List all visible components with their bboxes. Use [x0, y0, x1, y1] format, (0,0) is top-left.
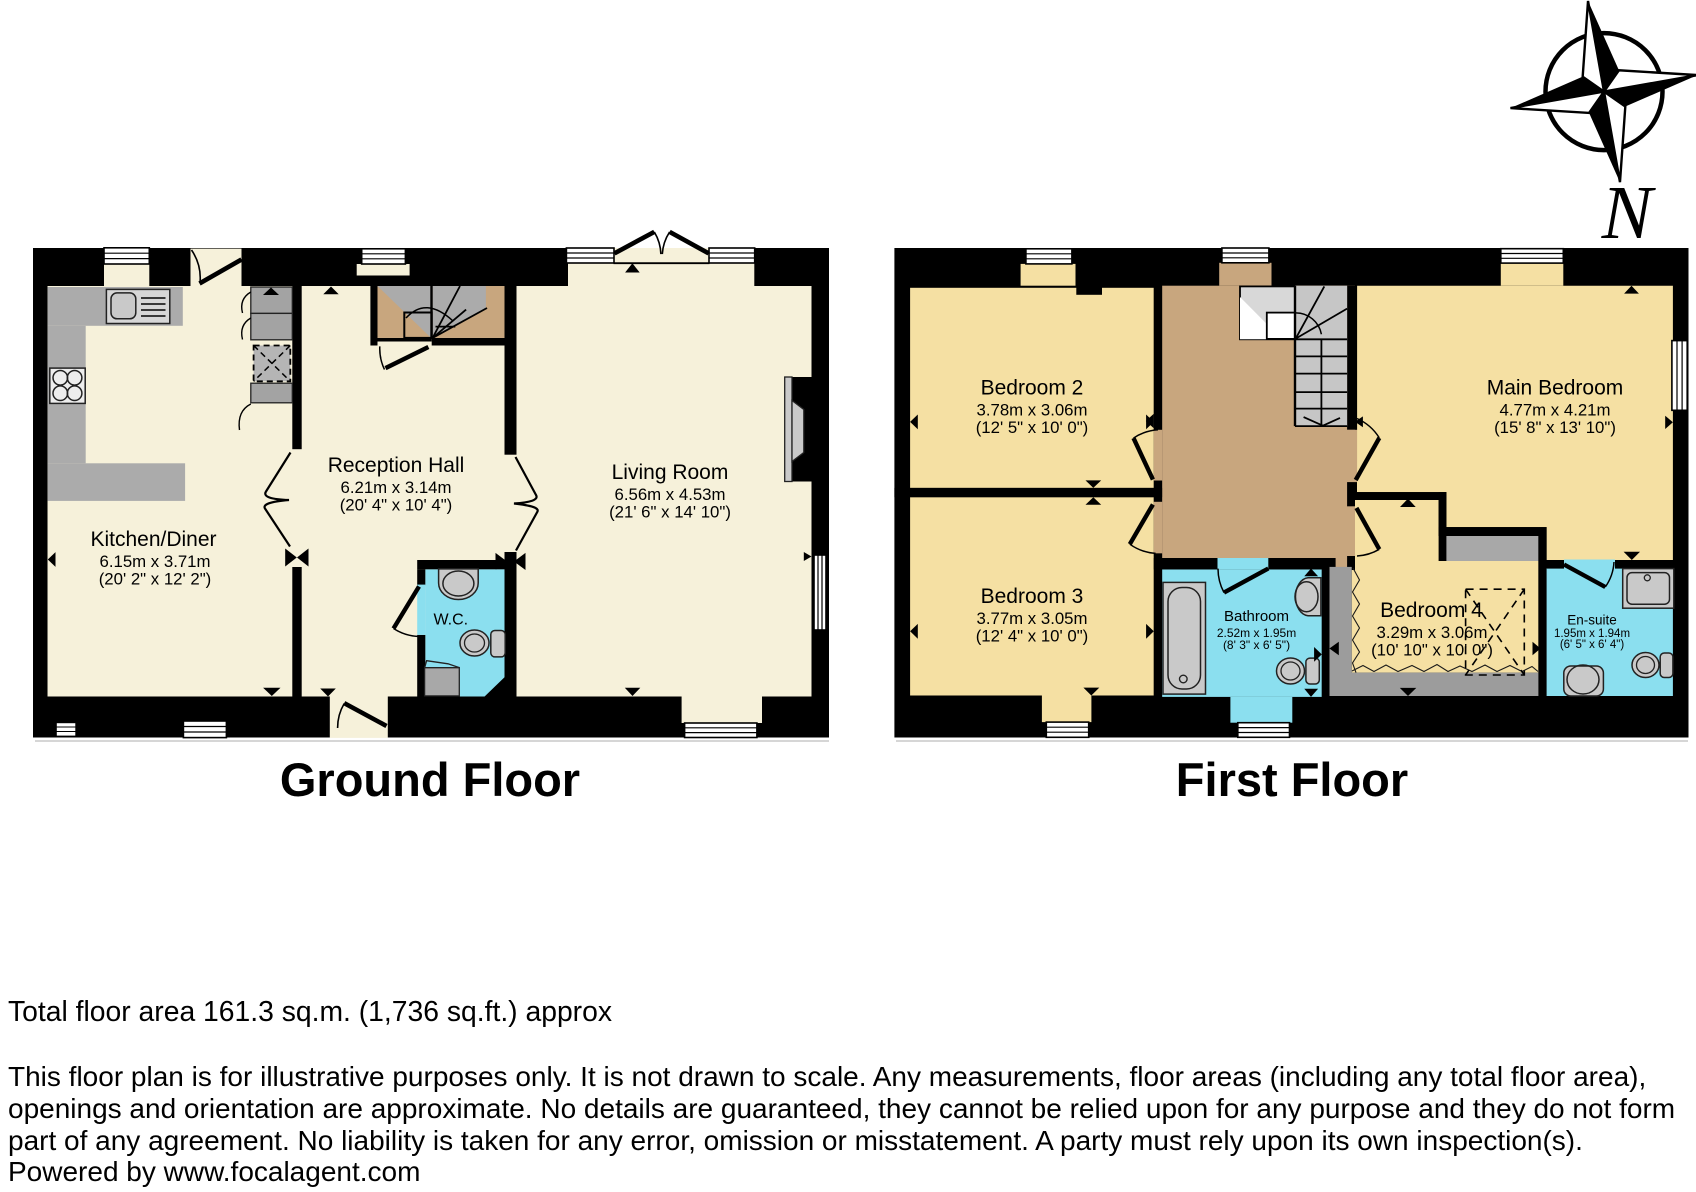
svg-text:Bedroom 4: Bedroom 4 — [1380, 599, 1483, 622]
svg-text:6.21m x 3.14m: 6.21m x 3.14m — [341, 478, 452, 497]
svg-text:3.78m x 3.06m: 3.78m x 3.06m — [977, 401, 1088, 420]
svg-text:(20' 2" x 12' 2"): (20' 2" x 12' 2") — [99, 570, 212, 589]
svg-text:(21' 6" x 14' 10"): (21' 6" x 14' 10") — [609, 503, 731, 522]
svg-text:Ground Floor: Ground Floor — [280, 753, 580, 806]
svg-text:Bedroom 2: Bedroom 2 — [981, 377, 1084, 400]
svg-text:(20' 4" x 10' 4"): (20' 4" x 10' 4") — [340, 496, 453, 515]
svg-text:(8' 3" x 6' 5"): (8' 3" x 6' 5") — [1223, 638, 1290, 652]
svg-text:W.C.: W.C. — [433, 612, 468, 629]
svg-text:4.77m x 4.21m: 4.77m x 4.21m — [1500, 401, 1611, 420]
svg-text:(15' 8" x 13' 10"): (15' 8" x 13' 10") — [1494, 418, 1616, 437]
svg-text:Bathroom: Bathroom — [1224, 608, 1289, 625]
svg-text:openings and orientation are a: openings and orientation are approximate… — [8, 1093, 1675, 1124]
svg-text:3.29m x 3.06m: 3.29m x 3.06m — [1377, 623, 1488, 642]
svg-text:(12' 5" x 10' 0"): (12' 5" x 10' 0") — [976, 418, 1089, 437]
svg-text:6.15m x 3.71m: 6.15m x 3.71m — [100, 552, 211, 571]
svg-text:(12' 4" x 10' 0"): (12' 4" x 10' 0") — [976, 627, 1089, 646]
svg-text:First Floor: First Floor — [1176, 753, 1408, 806]
svg-text:Living Room: Living Room — [612, 461, 729, 484]
svg-text:Main Bedroom: Main Bedroom — [1487, 377, 1624, 400]
svg-text:Reception Hall: Reception Hall — [328, 454, 465, 477]
svg-text:part of any agreement. No liab: part of any agreement. No liability is t… — [8, 1125, 1583, 1156]
svg-text:N: N — [1601, 171, 1657, 255]
svg-text:En-suite: En-suite — [1567, 613, 1617, 628]
svg-text:Powered by www.focalagent.com: Powered by www.focalagent.com — [8, 1156, 420, 1187]
svg-text:6.56m x 4.53m: 6.56m x 4.53m — [615, 485, 726, 504]
svg-text:(6' 5" x 6' 4"): (6' 5" x 6' 4") — [1560, 639, 1624, 651]
svg-text:(10' 10" x 10' 0"): (10' 10" x 10' 0") — [1371, 641, 1493, 660]
svg-text:This floor plan is for illustr: This floor plan is for illustrative purp… — [8, 1061, 1646, 1092]
svg-text:3.77m x 3.05m: 3.77m x 3.05m — [977, 609, 1088, 628]
svg-text:Total floor area 161.3 sq.m. (: Total floor area 161.3 sq.m. (1,736 sq.f… — [8, 995, 612, 1027]
svg-text:Bedroom 3: Bedroom 3 — [981, 585, 1084, 608]
svg-text:Kitchen/Diner: Kitchen/Diner — [90, 528, 216, 551]
